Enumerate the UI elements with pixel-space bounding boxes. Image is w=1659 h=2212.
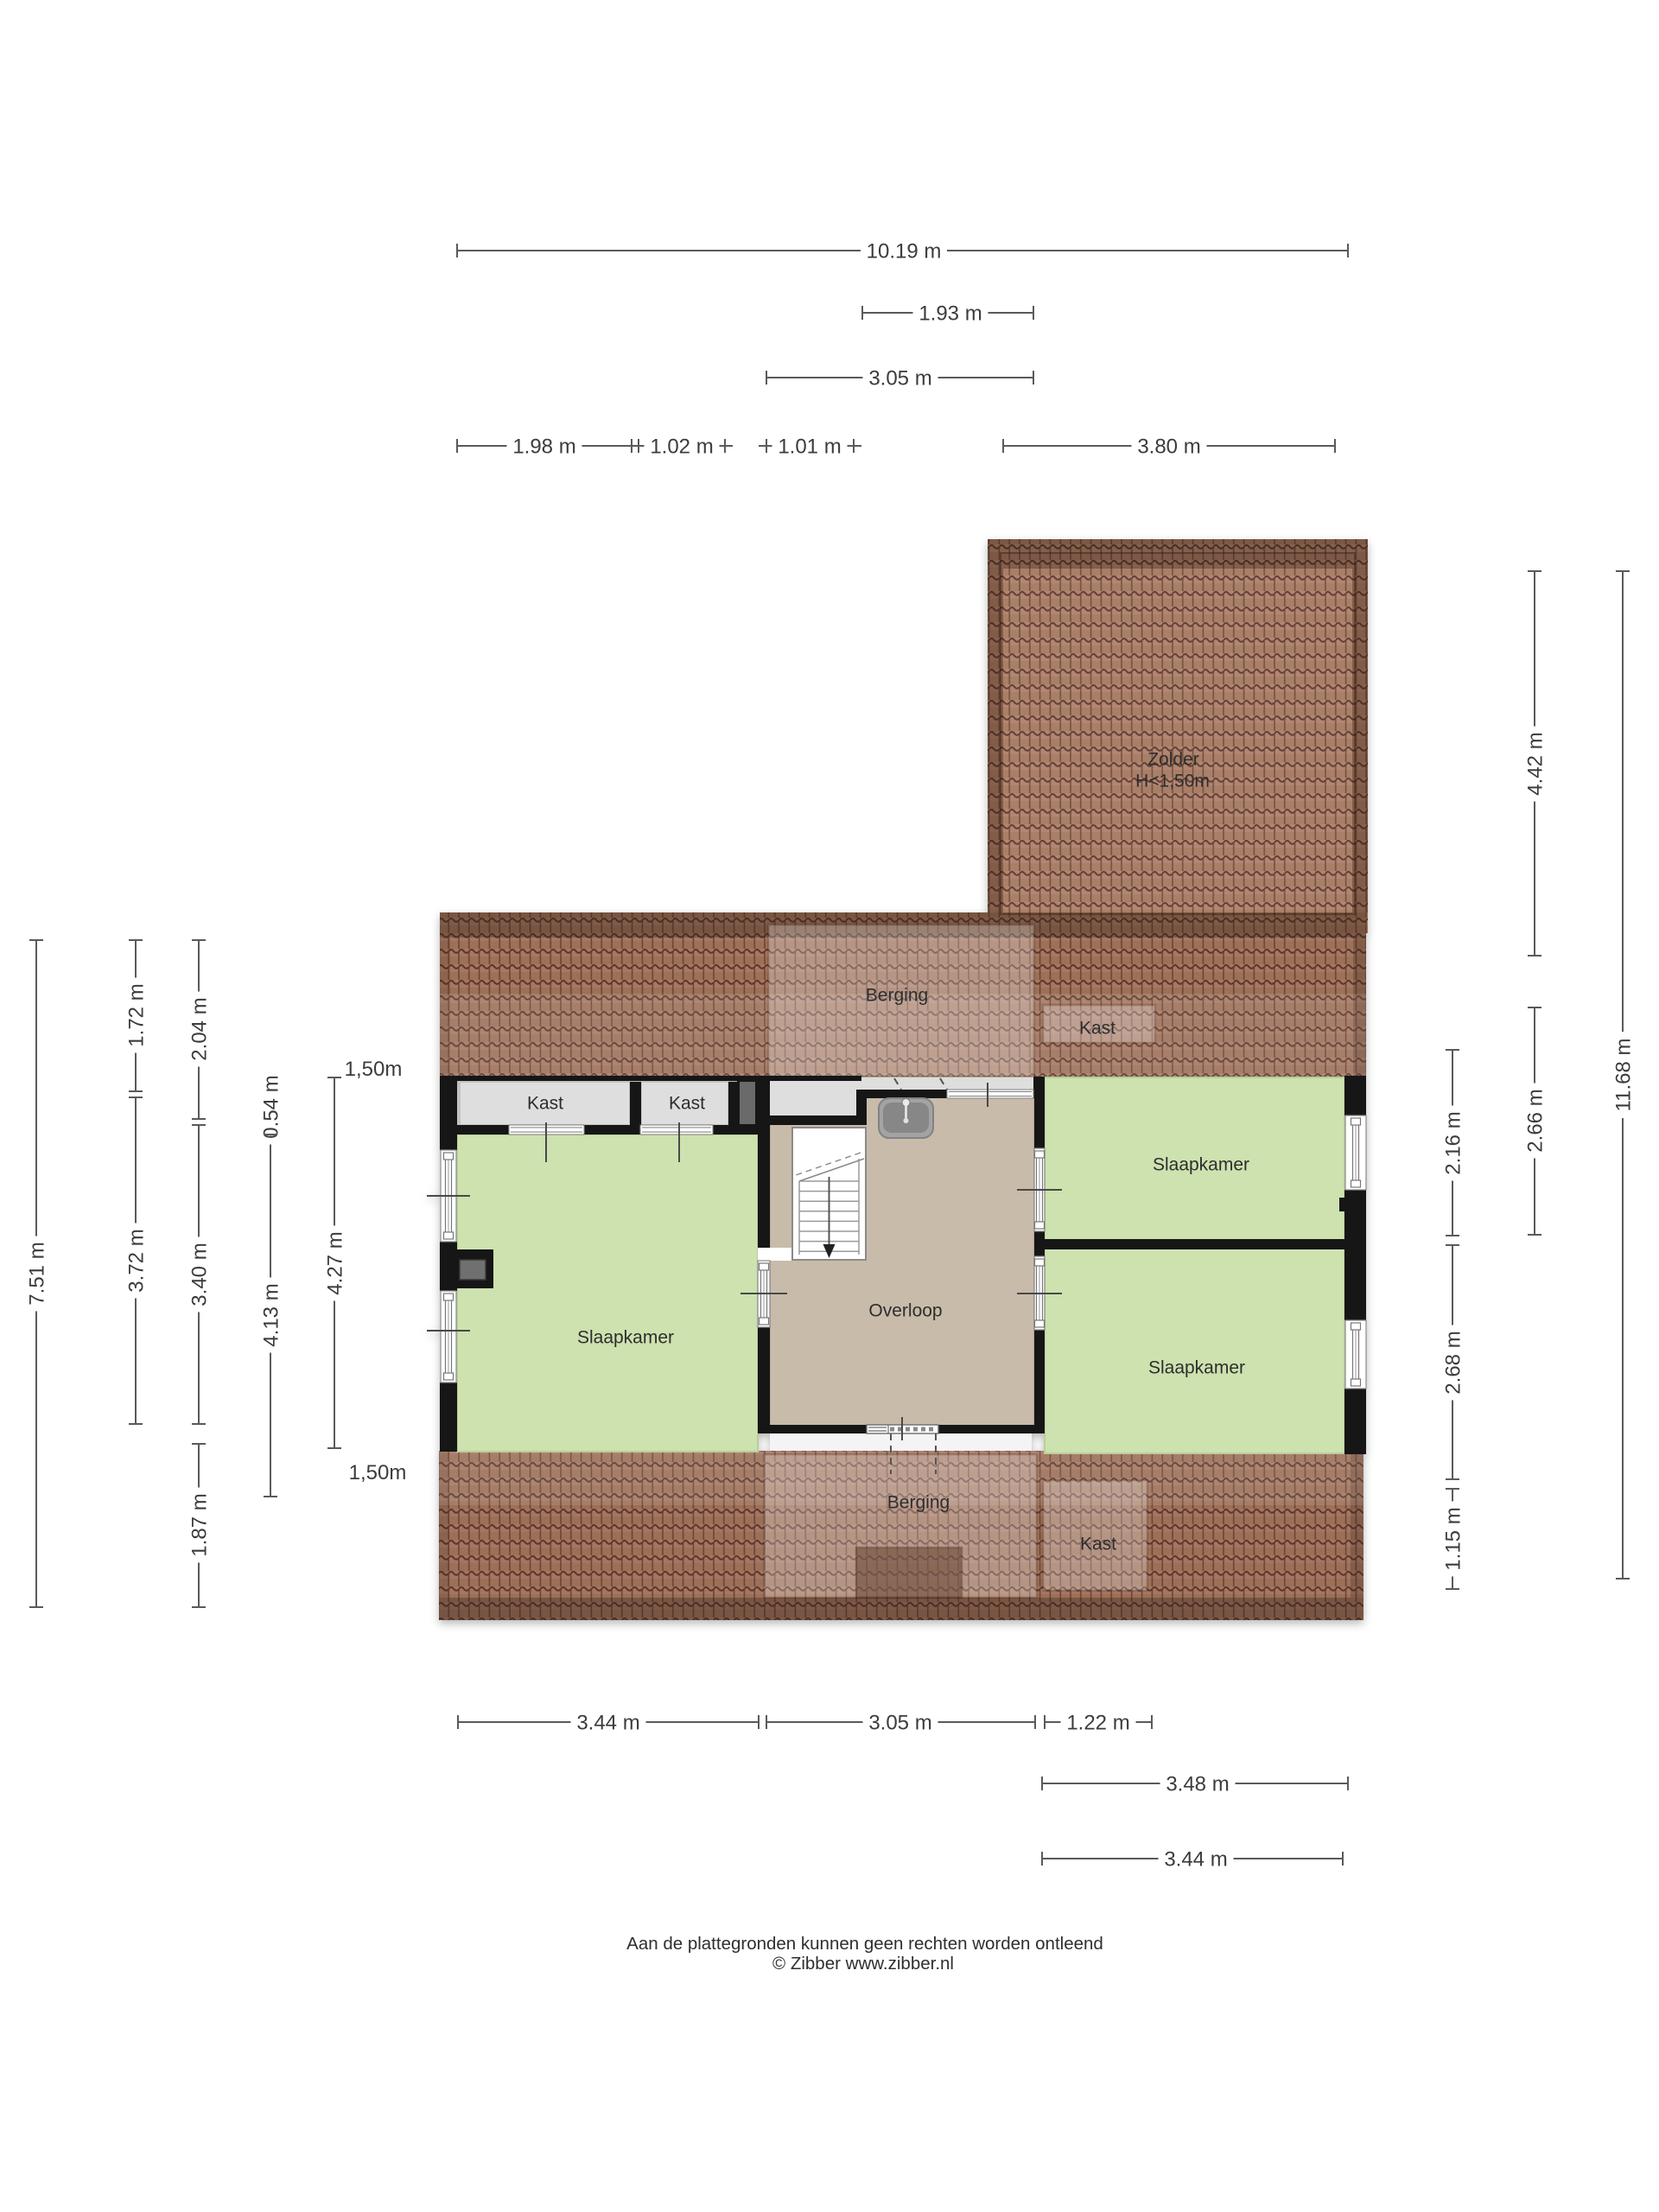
- svg-text:1.93 m: 1.93 m: [918, 302, 982, 326]
- svg-text:Kast: Kast: [669, 1094, 705, 1114]
- svg-text:Zolder: Zolder: [1147, 750, 1199, 770]
- svg-text:H<1,50m: H<1,50m: [1135, 772, 1210, 791]
- svg-text:1.87 m: 1.87 m: [188, 1493, 212, 1556]
- svg-text:1.01 m: 1.01 m: [778, 435, 841, 459]
- svg-text:Overloop: Overloop: [868, 1301, 942, 1321]
- svg-text:3.44 m: 3.44 m: [1164, 1848, 1227, 1872]
- svg-text:2.16 m: 2.16 m: [1442, 1111, 1465, 1174]
- svg-text:3.44 m: 3.44 m: [576, 1712, 639, 1735]
- svg-text:4.13 m: 4.13 m: [260, 1283, 283, 1346]
- svg-text:Kast: Kast: [527, 1094, 563, 1114]
- svg-text:3.48 m: 3.48 m: [1166, 1773, 1229, 1796]
- svg-text:Slaapkamer: Slaapkamer: [1153, 1155, 1249, 1175]
- svg-text:Aan de plattegronden kunnen ge: Aan de plattegronden kunnen geen rechten…: [626, 1934, 1103, 1954]
- svg-text:7.51 m: 7.51 m: [26, 1242, 49, 1305]
- svg-text:4.27 m: 4.27 m: [324, 1231, 347, 1294]
- svg-text:2.68 m: 2.68 m: [1442, 1331, 1465, 1394]
- svg-text:1.22 m: 1.22 m: [1066, 1712, 1129, 1735]
- svg-text:4.42 m: 4.42 m: [1524, 732, 1548, 795]
- svg-text:Kast: Kast: [1080, 1535, 1116, 1554]
- svg-text:Slaapkamer: Slaapkamer: [577, 1328, 674, 1348]
- svg-text:3.05 m: 3.05 m: [868, 367, 931, 391]
- svg-text:1.15 m: 1.15 m: [1442, 1507, 1465, 1570]
- svg-text:1.72 m: 1.72 m: [125, 983, 149, 1046]
- svg-text:3.80 m: 3.80 m: [1137, 435, 1200, 459]
- svg-text:1.02 m: 1.02 m: [650, 435, 713, 459]
- svg-text:3.05 m: 3.05 m: [868, 1712, 931, 1735]
- svg-text:Berging: Berging: [866, 986, 928, 1006]
- svg-text:3.72 m: 3.72 m: [125, 1229, 149, 1292]
- svg-text:3.40 m: 3.40 m: [188, 1243, 212, 1306]
- svg-text:0.54 m: 0.54 m: [260, 1075, 283, 1138]
- svg-text:Slaapkamer: Slaapkamer: [1148, 1358, 1245, 1378]
- svg-text:2.04 m: 2.04 m: [188, 997, 212, 1060]
- svg-text:1,50m: 1,50m: [349, 1461, 407, 1484]
- svg-text:1,50m: 1,50m: [345, 1058, 403, 1081]
- svg-text:© Zibber www.zibber.nl: © Zibber www.zibber.nl: [772, 1954, 954, 1974]
- svg-text:10.19 m: 10.19 m: [867, 240, 942, 264]
- svg-text:2.66 m: 2.66 m: [1524, 1089, 1548, 1152]
- svg-text:1.98 m: 1.98 m: [512, 435, 575, 459]
- svg-text:11.68 m: 11.68 m: [1612, 1039, 1636, 1112]
- svg-text:Berging: Berging: [887, 1493, 950, 1513]
- svg-text:Kast: Kast: [1079, 1019, 1116, 1039]
